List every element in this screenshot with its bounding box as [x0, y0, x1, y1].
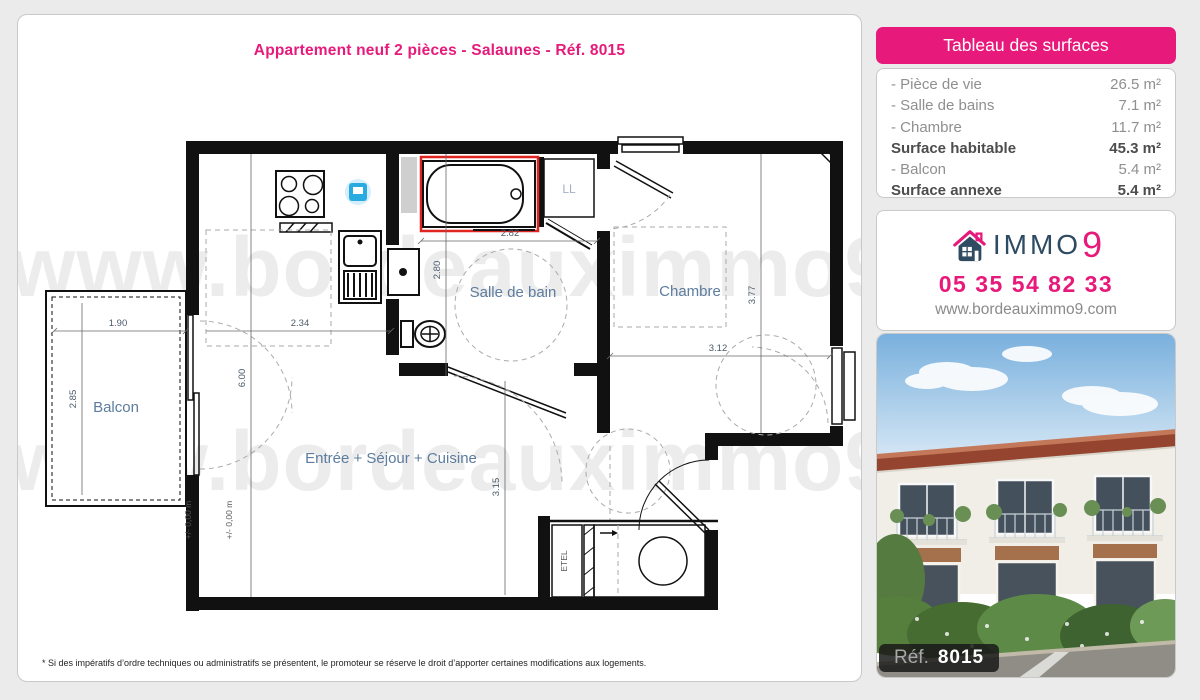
- surfaces-panel-header: Tableau des surfaces: [876, 27, 1176, 64]
- table-row-total: Surface annexe 5.4 m²: [891, 180, 1161, 201]
- floorplan-drawing: Balcon 1.90 2.85 +/- 0,00 m +/- 0,00 m: [18, 135, 862, 635]
- surface-label: - Balcon: [891, 159, 946, 180]
- agency-logo: IMMO 9: [877, 226, 1175, 264]
- bathroom-label: Salle de bain: [470, 284, 557, 301]
- kitchen-counter-outline: [206, 230, 331, 346]
- kitchen-sink-icon: [339, 231, 381, 303]
- door-swing-arc: [200, 377, 292, 469]
- laundry-closet-label: LL: [562, 182, 576, 196]
- surface-value: 45.3 m²: [1109, 138, 1161, 159]
- reference-label: Réf.: [894, 647, 929, 669]
- bedroom-turning-circle: [716, 335, 816, 435]
- table-row-total: Surface habitable 45.3 m²: [891, 138, 1161, 159]
- surface-value: 5.4 m²: [1118, 180, 1161, 201]
- bedroom-depth-dim: 3.77: [747, 286, 758, 305]
- bathroom-turning-circle: [455, 249, 567, 361]
- surface-value: 26.5 m²: [1110, 74, 1161, 95]
- bathroom-width-dim: 2.82: [501, 228, 520, 239]
- building-photo-card: Réf. 8015: [876, 333, 1176, 678]
- surface-label: Surface habitable: [891, 138, 1016, 159]
- fridge-icon: [388, 249, 419, 295]
- page-title: Appartement neuf 2 pièces - Salaunes - R…: [18, 15, 861, 60]
- agency-contact-card: IMMO 9 05 35 54 82 33 www.bordeauximmo9.…: [876, 210, 1176, 331]
- kitchen-width-dim: 2.34: [291, 318, 310, 329]
- surface-value: 7.1 m²: [1118, 95, 1161, 116]
- water-heater-icon: [639, 537, 687, 585]
- balcony-depth-dim: 2.85: [68, 390, 79, 409]
- door-swing-arc: [200, 321, 292, 413]
- reference-number: 8015: [938, 647, 984, 669]
- surface-label: Surface annexe: [891, 180, 1002, 201]
- living-length-dim: 6.00: [237, 369, 248, 388]
- surface-value: 11.7 m²: [1111, 117, 1161, 138]
- brand-name: IMMO: [993, 229, 1081, 261]
- house-logo-icon: [950, 226, 988, 264]
- bedroom-label: Chambre: [659, 283, 721, 300]
- balcony-label: Balcon: [93, 399, 139, 416]
- living-room-label: Entrée + Séjour + Cuisine: [305, 450, 477, 467]
- bedroom-width-dim: 3.12: [709, 343, 728, 354]
- laundry-closet: LL: [544, 159, 594, 249]
- footer-disclaimer: * Si des impératifs d’ordre techniques o…: [42, 658, 646, 668]
- table-row: - Pièce de vie 26.5 m²: [891, 74, 1161, 95]
- level-marker: +/- 0,00 m: [183, 501, 193, 540]
- door-swing-arc: [454, 376, 562, 484]
- toilet-icon: [401, 321, 445, 347]
- bed-outline: [614, 227, 726, 327]
- stove-icon: [276, 171, 332, 232]
- level-marker: +/- 0,00 m: [224, 501, 234, 540]
- reference-badge: Réf. 8015: [879, 644, 999, 672]
- phone-number[interactable]: 05 35 54 82 33: [877, 271, 1175, 298]
- table-row: - Chambre 11.7 m²: [891, 117, 1161, 138]
- plan-sheet: Appartement neuf 2 pièces - Salaunes - R…: [17, 14, 862, 682]
- balcony-sliding-door-icon: [188, 315, 199, 475]
- surface-label: - Pièce de vie: [891, 74, 982, 95]
- table-row: - Salle de bains 7.1 m²: [891, 95, 1161, 116]
- surfaces-table: - Pièce de vie 26.5 m² - Salle de bains …: [876, 68, 1176, 198]
- dishwasher-icon: [345, 179, 371, 205]
- technical-closets: ETEL: [538, 521, 718, 597]
- table-row: - Balcon 5.4 m²: [891, 159, 1161, 180]
- electrical-closet-label: ETEL: [559, 550, 569, 572]
- brand-digit: 9: [1082, 231, 1102, 259]
- website-link[interactable]: www.bordeauximmo9.com: [877, 301, 1175, 319]
- surfaces-panel-title: Tableau des surfaces: [943, 35, 1108, 56]
- bathroom-depth-dim: 2.80: [432, 261, 443, 280]
- surface-label: - Salle de bains: [891, 95, 994, 116]
- building-photo: [877, 334, 1176, 678]
- bedroom-right-window-icon: [832, 348, 855, 424]
- surface-label: - Chambre: [891, 117, 962, 138]
- surface-value: 5.4 m²: [1118, 159, 1161, 180]
- living-depth-dim: 3.15: [491, 478, 502, 497]
- balcony-width-dim: 1.90: [109, 318, 128, 329]
- duct-shaft: [401, 157, 417, 213]
- bedroom: Chambre 3.12 3.77: [607, 154, 833, 435]
- entry-turning-circle: [586, 429, 670, 513]
- bedroom-top-window-icon: [618, 137, 683, 152]
- balcony: Balcon 1.90 2.85: [46, 291, 189, 506]
- bathtub-icon: [423, 161, 535, 230]
